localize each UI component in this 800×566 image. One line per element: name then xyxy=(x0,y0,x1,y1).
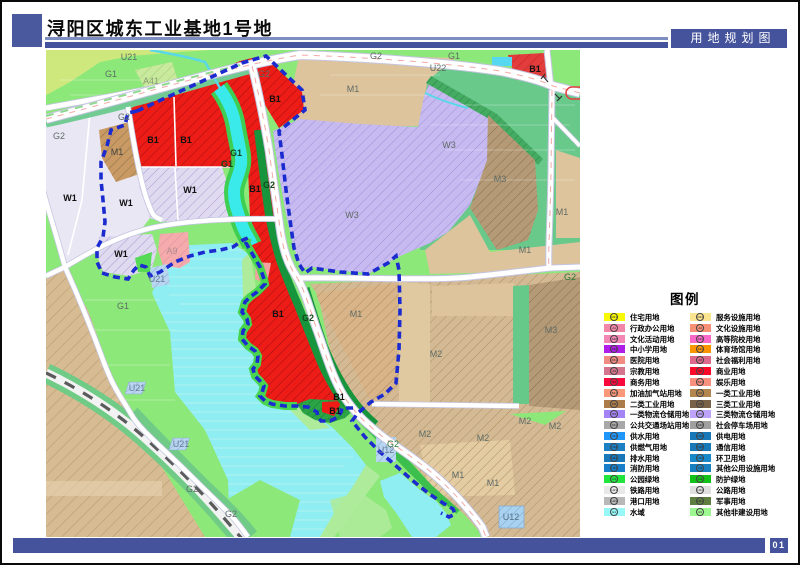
svg-text:M3: M3 xyxy=(494,174,507,184)
svg-text:U21: U21 xyxy=(173,439,190,449)
svg-text:M2: M2 xyxy=(519,416,532,426)
svg-text:M2: M2 xyxy=(477,433,490,443)
svg-text:M1: M1 xyxy=(111,147,124,157)
svg-text:B1: B1 xyxy=(529,64,541,74)
svg-text:W1: W1 xyxy=(183,185,197,195)
svg-text:B1: B1 xyxy=(329,406,341,416)
svg-text:W3: W3 xyxy=(442,140,456,150)
svg-text:M1: M1 xyxy=(519,245,532,255)
svg-text:M2: M2 xyxy=(549,421,562,431)
svg-text:B1: B1 xyxy=(269,94,281,104)
svg-text:U21: U21 xyxy=(149,274,166,284)
svg-text:G2: G2 xyxy=(225,509,237,519)
svg-text:M1: M1 xyxy=(487,478,500,488)
svg-text:M3: M3 xyxy=(545,325,558,335)
svg-text:U12: U12 xyxy=(378,445,395,455)
svg-text:M1: M1 xyxy=(350,309,363,319)
svg-text:G1: G1 xyxy=(117,301,129,311)
svg-text:G1: G1 xyxy=(105,69,117,79)
svg-text:W3: W3 xyxy=(345,210,359,220)
svg-text:W1: W1 xyxy=(119,198,133,208)
svg-text:M1: M1 xyxy=(556,207,569,217)
svg-text:U21: U21 xyxy=(121,52,138,62)
svg-text:M2: M2 xyxy=(419,429,432,439)
svg-text:G2: G2 xyxy=(263,180,275,190)
svg-text:G2: G2 xyxy=(53,131,65,141)
svg-text:B1: B1 xyxy=(272,309,284,319)
svg-text:M2: M2 xyxy=(430,349,443,359)
svg-text:G1: G1 xyxy=(448,51,460,61)
svg-text:G2: G2 xyxy=(118,112,130,122)
svg-text:A9: A9 xyxy=(166,246,177,256)
svg-text:G2: G2 xyxy=(186,484,198,494)
svg-text:A41: A41 xyxy=(143,76,159,86)
svg-text:G2: G2 xyxy=(258,69,270,79)
svg-text:U12: U12 xyxy=(503,512,520,522)
svg-text:W1: W1 xyxy=(114,249,128,259)
svg-text:G2: G2 xyxy=(370,51,382,61)
svg-text:B1: B1 xyxy=(147,135,159,145)
svg-text:B1: B1 xyxy=(249,184,261,194)
svg-text:G1: G1 xyxy=(230,148,242,158)
svg-text:M1: M1 xyxy=(452,470,465,480)
svg-text:U22: U22 xyxy=(430,63,447,73)
svg-text:W1: W1 xyxy=(63,193,77,203)
svg-text:G2: G2 xyxy=(302,313,314,323)
svg-text:U21: U21 xyxy=(129,383,146,393)
svg-text:G1: G1 xyxy=(221,159,233,169)
svg-text:B1: B1 xyxy=(333,392,345,402)
svg-text:B1: B1 xyxy=(180,135,192,145)
svg-text:M1: M1 xyxy=(347,84,360,94)
svg-text:G2: G2 xyxy=(564,272,576,282)
